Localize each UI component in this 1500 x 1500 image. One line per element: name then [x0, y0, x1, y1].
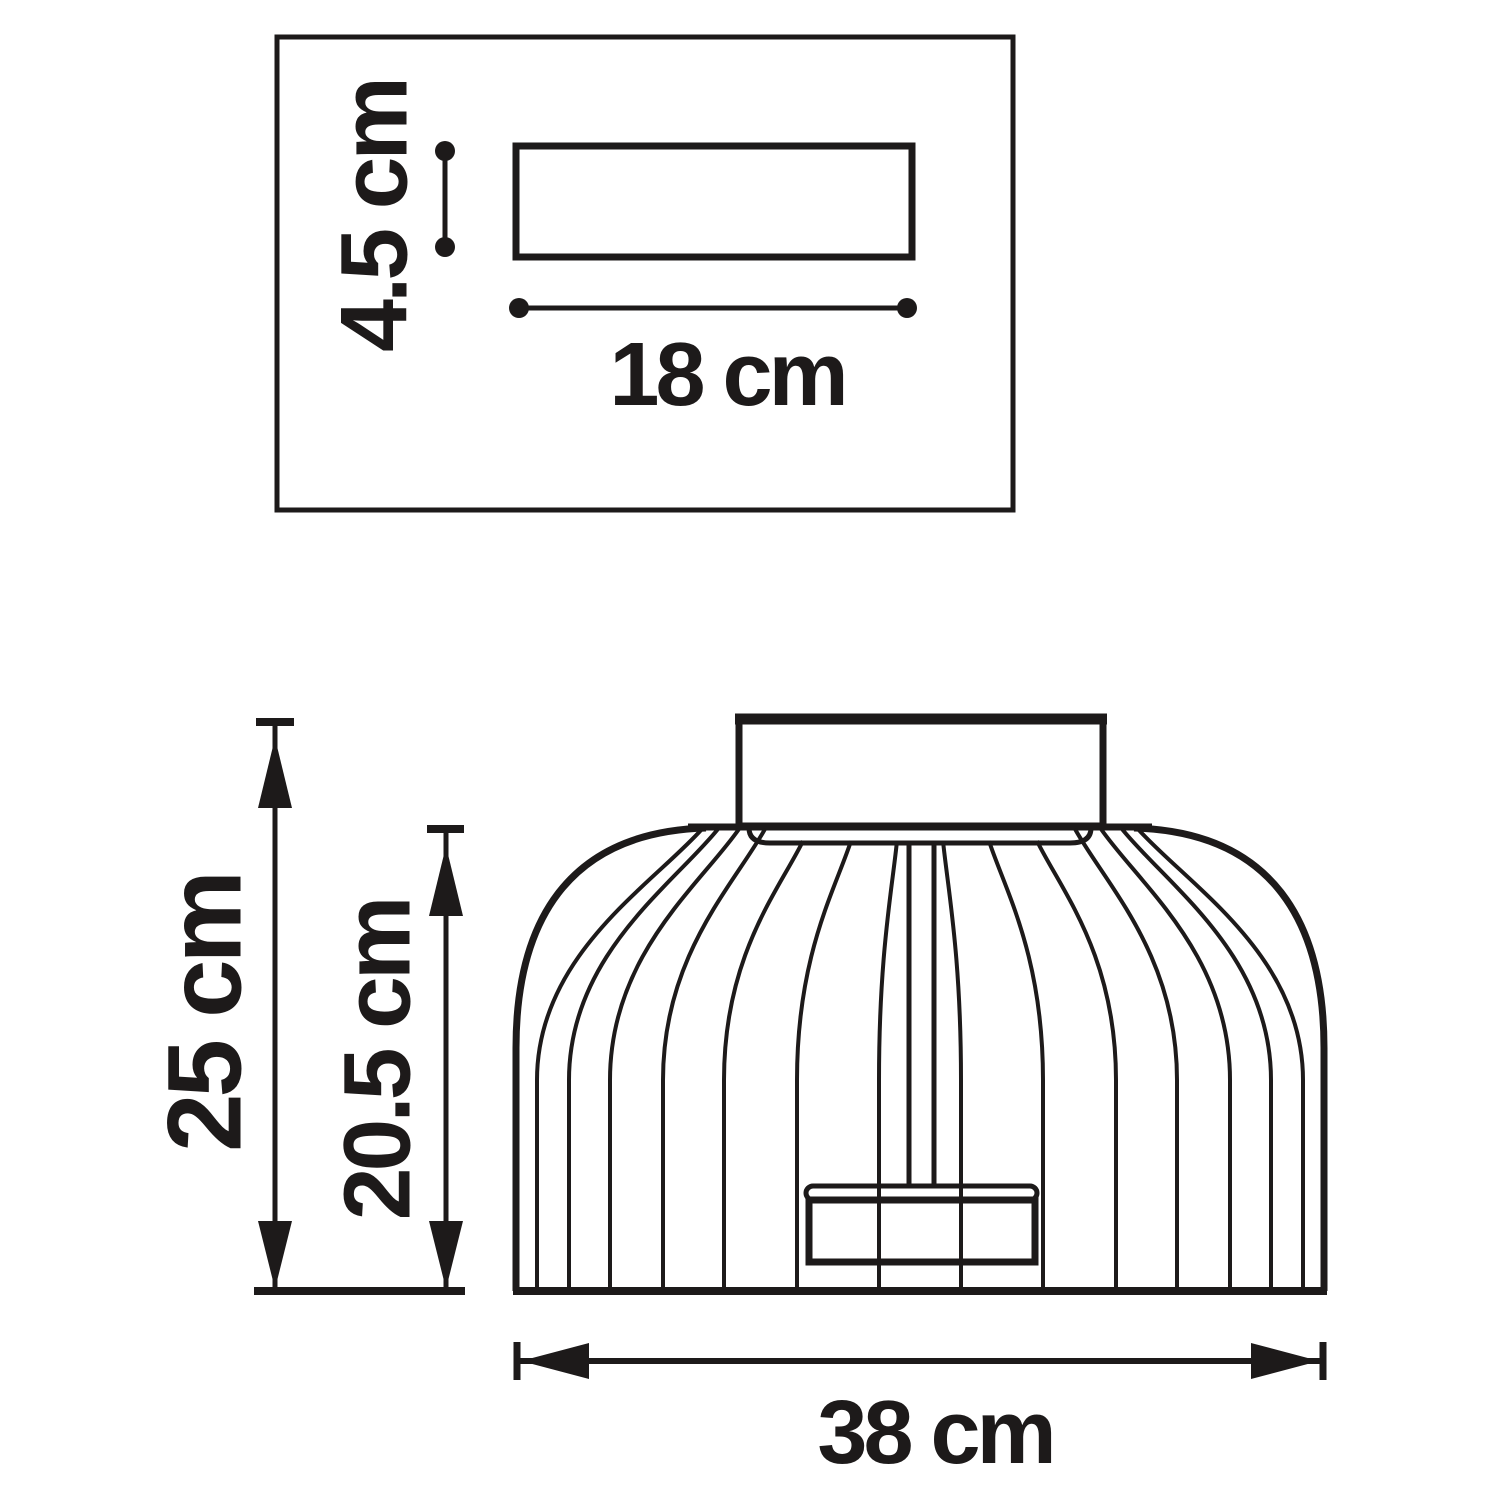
dimension-diagram: 4.5 cm 18 cm 25 cm 20.5 cm 38 cm — [0, 0, 1500, 1500]
dimension-plate-width — [509, 298, 917, 318]
mount-block — [739, 719, 1103, 826]
mount-plate-top-view — [516, 146, 912, 257]
lamp-stem — [909, 843, 934, 1187]
dimension-shade-height — [427, 829, 464, 1291]
diameter-label: 38 cm — [817, 1388, 1052, 1478]
shade-height-label: 20.5 cm — [331, 900, 426, 1221]
plate-height-label: 4.5 cm — [328, 80, 423, 352]
ceiling-lamp-front-view — [513, 719, 1327, 1291]
plate-width-label: 18 cm — [609, 330, 844, 420]
diagram-linework — [0, 0, 1500, 1500]
shade-ribs — [537, 829, 1303, 1291]
holder-disc-body — [809, 1200, 1035, 1262]
total-height-label: 25 cm — [153, 874, 258, 1152]
dimension-diameter — [517, 1342, 1323, 1380]
dimension-plate-height — [435, 141, 455, 257]
